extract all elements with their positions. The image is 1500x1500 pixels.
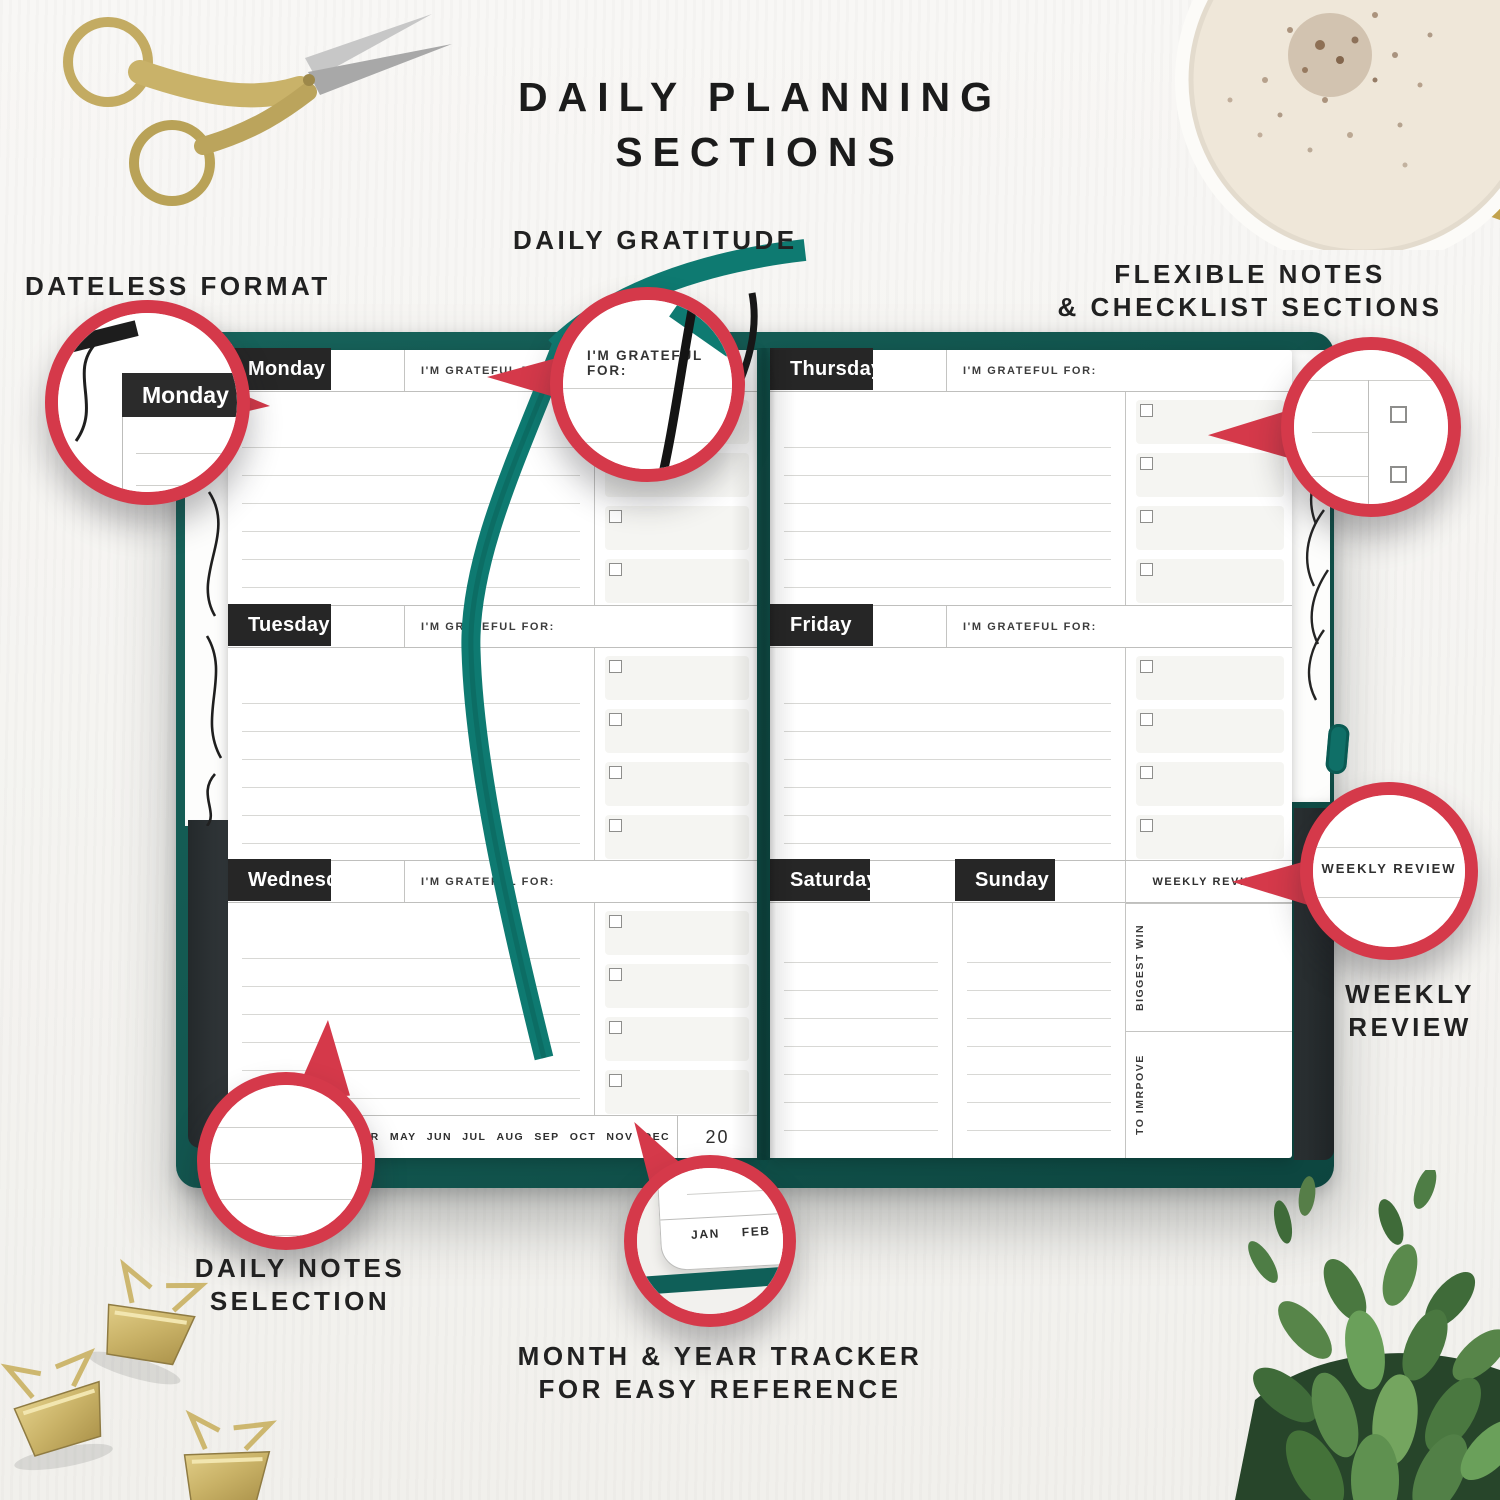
page-title: DAILY PLANNING SECTIONS: [430, 70, 1090, 181]
checklist-column: [1125, 648, 1292, 860]
grateful-cell: I'M GRATEFUL FOR:: [404, 861, 594, 902]
ruled-line: [210, 1127, 362, 1128]
ruled-line: [136, 453, 237, 454]
checkbox-icon: [1140, 819, 1153, 832]
day-tab-friday: Friday: [770, 604, 873, 646]
to-improve-box: TO IMRPOVE: [1126, 1031, 1292, 1158]
month-tracker-line2: FOR EASY REFERENCE: [460, 1373, 980, 1406]
checkbox-icon: [609, 563, 622, 576]
month-label: JUL: [462, 1131, 486, 1143]
checkbox-icon: [1140, 457, 1153, 470]
month-tracker-line1: MONTH & YEAR TRACKER: [460, 1340, 980, 1373]
day-section-thursday: Thursday I'M GRATEFUL FOR:: [770, 350, 1292, 605]
checklist-row: [603, 709, 749, 762]
flexible-notes-line2: & CHECKLIST SECTIONS: [1020, 291, 1480, 324]
grateful-cell: I'M GRATEFUL FOR:: [404, 606, 594, 647]
checklist-row: [603, 911, 749, 964]
day-label: Monday: [248, 358, 325, 381]
checkbox-icon: [1390, 466, 1407, 483]
day-header: Tuesday I'M GRATEFUL FOR:: [228, 606, 757, 648]
checkbox-icon: [609, 968, 622, 981]
day-label: Wednesday: [248, 869, 361, 892]
ruled-line: [1312, 432, 1368, 433]
to-improve-label: TO IMRPOVE: [1130, 1032, 1150, 1158]
checkbox-icon: [1140, 766, 1153, 779]
checkbox-icon: [609, 713, 622, 726]
grid-line: [122, 417, 123, 492]
checkbox-icon: [1140, 510, 1153, 523]
page-title-line2: SECTIONS: [430, 125, 1090, 180]
day-label: Sunday: [975, 869, 1049, 892]
notes-area: [770, 648, 1125, 860]
checkbox-icon: [609, 915, 622, 928]
binder-clip: [0, 1352, 115, 1476]
magnified-month-row: JAN FEB MAR A: [691, 1222, 783, 1241]
callout-label-month-tracker: MONTH & YEAR TRACKER FOR EASY REFERENCE: [460, 1340, 980, 1405]
saturday-notes-column: [770, 903, 952, 1158]
ruled-line: [136, 485, 237, 486]
pen-loop: [1325, 723, 1350, 775]
daily-notes-line1: DAILY NOTES: [140, 1252, 460, 1285]
checklist-column: [594, 903, 757, 1115]
ruled-lines: [967, 935, 1111, 1152]
checklist-column: [594, 648, 757, 860]
magnified-monday-label: Monday: [142, 382, 229, 409]
day-tab-wednesday: Wednesday: [228, 859, 331, 901]
checkbox-icon: [1140, 713, 1153, 726]
black-ribbon-zoom: [644, 300, 714, 469]
magnifier-month-tracker: JAN FEB MAR A: [624, 1155, 796, 1327]
checkbox-icon: [1390, 406, 1407, 423]
ruled-line: [1313, 847, 1465, 848]
month-label: AUG: [497, 1131, 525, 1143]
callout-label-dateless-format: DATELESS FORMAT: [25, 270, 331, 303]
checklist-row: [603, 506, 749, 559]
month-label: FEB: [741, 1224, 771, 1239]
page-title-line1: DAILY PLANNING: [430, 70, 1090, 125]
magnifier-flexible-notes: [1281, 337, 1461, 517]
ruled-line: [1312, 476, 1368, 477]
ruled-line: [1294, 380, 1448, 381]
notes-area: [228, 648, 594, 860]
grid-line: [1368, 380, 1369, 504]
grateful-label: I'M GRATEFUL FOR:: [963, 621, 1097, 633]
weekly-review-line1: WEEKLY: [1320, 978, 1500, 1011]
magnified-weekly-review-label: WEEKLY REVIEW: [1313, 861, 1465, 876]
daily-gratitude-text: DAILY GRATITUDE: [513, 225, 798, 255]
magnified-monday-tab: Monday: [122, 373, 237, 417]
month-label: SEP: [534, 1131, 559, 1143]
ruled-line: [1313, 897, 1465, 898]
month-label: JAN: [691, 1226, 721, 1241]
weekend-section: Saturday Sunday WEEKLY REVIEW BIGGEST WI…: [770, 860, 1292, 1158]
ruled-line: [210, 1199, 362, 1200]
biggest-win-box: BIGGEST WIN: [1126, 903, 1292, 1031]
magnifier-weekly-review: WEEKLY REVIEW WIN: [1300, 782, 1478, 960]
magnifier-content: [210, 1085, 362, 1237]
magnifier-content: JAN FEB MAR A: [637, 1168, 783, 1314]
callout-label-daily-gratitude: DAILY GRATITUDE: [513, 224, 798, 257]
grid-line: [660, 1212, 783, 1220]
ruled-line: [210, 1235, 362, 1236]
ruled-line: [210, 1163, 362, 1164]
checkbox-icon: [609, 1021, 622, 1034]
day-label: Tuesday: [248, 614, 330, 637]
callout-label-daily-notes: DAILY NOTES SELECTION: [140, 1252, 460, 1317]
month-label: OCT: [570, 1131, 596, 1143]
planner-right-page: Thursday I'M GRATEFUL FOR: Friday: [770, 350, 1292, 1158]
checkbox-icon: [1140, 563, 1153, 576]
ruled-line: [687, 1189, 783, 1195]
ruled-lines: [784, 676, 1111, 854]
magnified-weekly-review-text: WEEKLY REVIEW: [1321, 861, 1456, 876]
ruled-lines: [242, 420, 580, 599]
checkbox-icon: [609, 819, 622, 832]
day-header: Friday I'M GRATEFUL FOR:: [770, 606, 1292, 648]
planner-product-image: DAILY PLANNING SECTIONS: [0, 0, 1500, 1500]
checklist-row: [603, 964, 749, 1017]
magnifier-content: Monday: [58, 313, 237, 492]
day-section-tuesday: Tuesday I'M GRATEFUL FOR:: [228, 605, 757, 860]
checklist-row: [603, 1017, 749, 1070]
month-label: NOV: [606, 1131, 633, 1143]
daily-notes-line2: SELECTION: [140, 1285, 460, 1318]
grateful-label: I'M GRATEFUL FOR:: [421, 876, 555, 888]
magnifier-content: WEEKLY REVIEW WIN: [1313, 795, 1465, 947]
magnified-win-text: WIN: [1321, 941, 1333, 947]
ruled-lines: [784, 935, 938, 1152]
day-tab-tuesday: Tuesday: [228, 604, 331, 646]
checklist-row: [1134, 762, 1284, 815]
magnifier-daily-gratitude: I'M GRATEFUL FOR:: [550, 287, 745, 482]
coffee-cup: [1170, 0, 1500, 250]
flexible-notes-line1: FLEXIBLE NOTES: [1020, 258, 1480, 291]
magnifier-dateless-format: Monday: [45, 300, 250, 505]
ruled-lines: [242, 676, 580, 854]
year-cell: 20: [677, 1116, 757, 1158]
grateful-label: I'M GRATEFUL FOR:: [421, 621, 555, 633]
day-tab-thursday: Thursday: [770, 348, 873, 390]
grateful-cell: I'M GRATEFUL FOR:: [946, 606, 1125, 647]
spine-shadow: [752, 348, 776, 1160]
day-header: Thursday I'M GRATEFUL FOR:: [770, 350, 1292, 392]
year-label: 20: [705, 1127, 729, 1148]
grateful-cell: I'M GRATEFUL FOR:: [946, 350, 1125, 391]
checklist-row: [603, 656, 749, 709]
checkbox-icon: [609, 660, 622, 673]
notes-area: [228, 392, 594, 605]
weekly-review-line2: REVIEW: [1320, 1011, 1500, 1044]
checklist-row: [1134, 453, 1284, 506]
checklist-row: [1134, 506, 1284, 559]
checkbox-icon: [609, 1074, 622, 1087]
day-header: Wednesday I'M GRATEFUL FOR:: [228, 861, 757, 903]
callout-label-flexible-notes: FLEXIBLE NOTES & CHECKLIST SECTIONS: [1020, 258, 1480, 323]
binder-clip: [180, 1415, 273, 1500]
checkbox-icon: [1140, 660, 1153, 673]
day-label: Thursday: [790, 358, 882, 381]
page-corner-zoom: JAN FEB MAR A: [656, 1168, 783, 1271]
checkbox-icon: [609, 766, 622, 779]
callout-label-weekly-review: WEEKLY REVIEW: [1320, 978, 1500, 1043]
month-label: JUN: [427, 1131, 452, 1143]
checklist-row: [1134, 656, 1284, 709]
magnifier-daily-notes: [197, 1072, 375, 1250]
day-tab-sunday: Sunday: [955, 859, 1055, 901]
ruled-lines: [784, 420, 1111, 599]
notes-area: [770, 392, 1125, 605]
day-section-friday: Friday I'M GRATEFUL FOR:: [770, 605, 1292, 860]
sunday-notes-column: [952, 903, 1125, 1158]
day-label: Friday: [790, 614, 852, 637]
magnified-win-label: WIN: [1321, 907, 1333, 947]
weekly-review-column: WEEKLY REVIEW BIGGEST WIN TO IMRPOVE: [1125, 861, 1292, 1158]
grateful-label: I'M GRATEFUL FOR:: [963, 365, 1097, 377]
day-label: Saturday: [790, 869, 878, 892]
scissors-decoration: [20, 0, 460, 215]
plant-decoration: [1195, 1170, 1500, 1500]
checkbox-icon: [609, 510, 622, 523]
checklist-row: [1134, 709, 1284, 762]
cover-edge-zoom: [637, 1266, 783, 1296]
day-tab-saturday: Saturday: [770, 859, 870, 901]
magnifier-content: I'M GRATEFUL FOR:: [563, 300, 732, 469]
month-label: MAY: [390, 1131, 417, 1143]
checklist-row: [603, 762, 749, 815]
magnifier-content: [1294, 350, 1448, 504]
dateless-format-text: DATELESS FORMAT: [25, 271, 331, 301]
biggest-win-label: BIGGEST WIN: [1130, 904, 1150, 1031]
checkbox-icon: [1140, 404, 1153, 417]
